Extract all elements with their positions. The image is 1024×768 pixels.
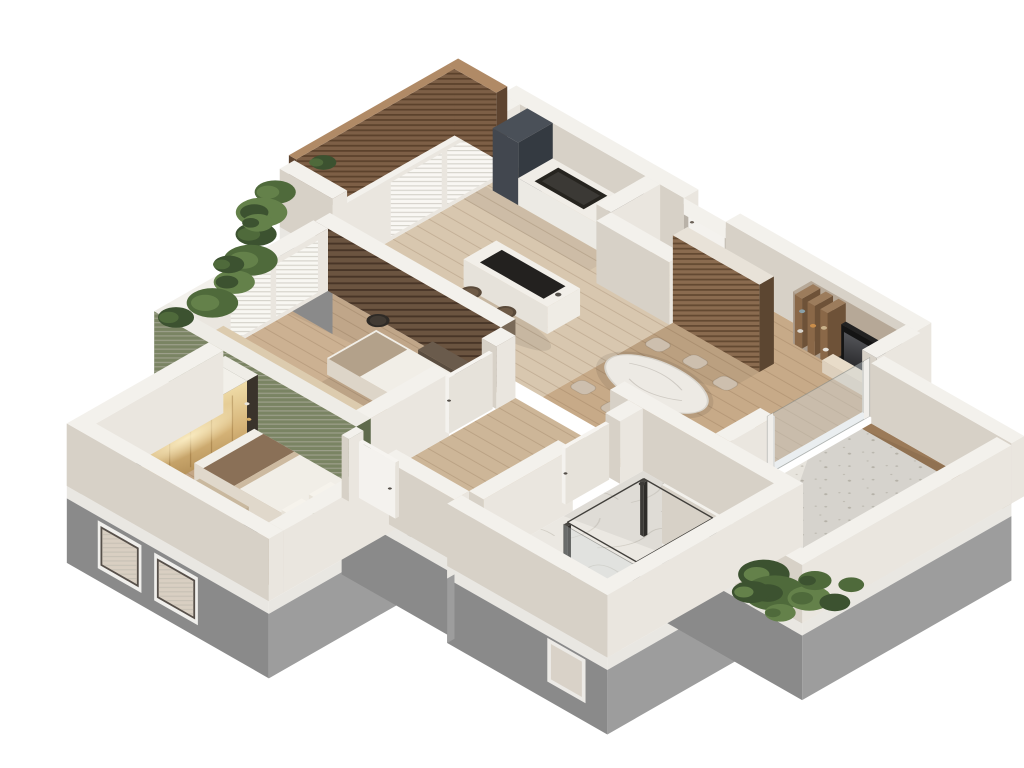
floorplan-3d xyxy=(0,0,1024,768)
floorplan-page: A1 xyxy=(0,0,1024,768)
